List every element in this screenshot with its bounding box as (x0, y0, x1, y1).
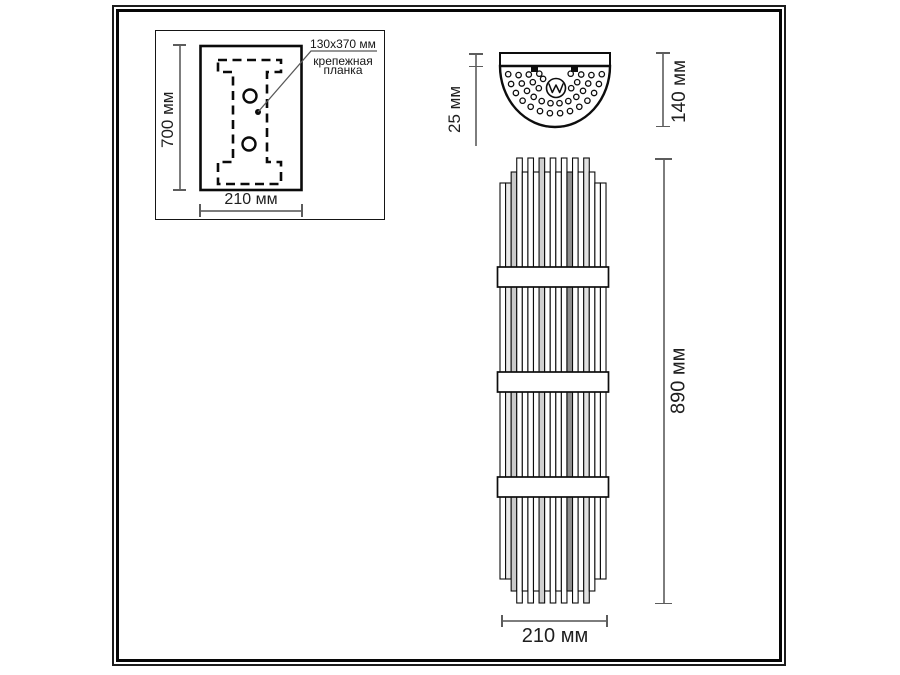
inset-width-dim-line (200, 210, 302, 212)
vent-hole (516, 72, 521, 77)
vent-hole (506, 72, 511, 77)
vent-hole (508, 81, 513, 86)
vent-hole (547, 111, 552, 116)
vent-hole (599, 72, 604, 77)
mounting-hole-bottom (243, 138, 256, 151)
inset-width-dim-label: 210 мм (198, 192, 304, 208)
vent-hole (513, 90, 518, 95)
vent-hole (567, 108, 572, 113)
lamp-height-dim-line (663, 159, 665, 604)
vent-hole (557, 111, 562, 116)
vent-hole (557, 101, 562, 106)
vent-hole (520, 98, 525, 103)
vent-hole (548, 101, 553, 106)
vent-hole (526, 72, 531, 77)
plate-depth-dim-cap-bottom (469, 66, 483, 68)
inset-height-dim-line (179, 45, 181, 190)
lamp-height-dim-cap-top (655, 158, 672, 160)
total-depth-dim-line (662, 53, 664, 127)
plate-depth-dim-label: 25 мм (444, 72, 466, 146)
vent-hole (596, 81, 601, 86)
callout-size-label: 130x370 мм (306, 39, 380, 49)
total-depth-dim-cap-top (656, 52, 670, 54)
vent-hole (531, 94, 536, 99)
vent-hole (589, 72, 594, 77)
vent-hole (540, 76, 545, 81)
vent-hole (524, 88, 529, 93)
vent-hole (566, 98, 571, 103)
vent-hole (577, 104, 582, 109)
plate-depth-dim-line (475, 54, 477, 146)
vent-hole (580, 88, 585, 93)
top-view-wall-plate (500, 53, 610, 66)
inset-height-dim-cap-bottom (173, 189, 186, 191)
mount-tab-left (531, 67, 538, 73)
mounting-hole-top (244, 90, 257, 103)
front-view-drawing (490, 150, 620, 610)
technical-drawing-page: 130x370 мм крепежная планка 700 мм 210 м… (0, 0, 900, 675)
lamp-width-dim-label: 210 мм (490, 625, 620, 647)
vent-hole (530, 80, 535, 85)
decorative-band-top (498, 267, 609, 287)
callout-name-line2: планка (306, 65, 380, 75)
vent-hole (591, 90, 596, 95)
vent-hole (569, 86, 574, 91)
decorative-band-bottom (498, 477, 609, 497)
vent-hole (575, 80, 580, 85)
vent-hole (519, 81, 524, 86)
vent-hole (537, 108, 542, 113)
mount-tab-right (571, 67, 578, 73)
inset-height-dim-label: 700 мм (157, 80, 179, 160)
lamp-width-dim-line (502, 620, 607, 622)
vent-hole (585, 98, 590, 103)
brand-logo-circle (547, 79, 566, 98)
vent-hole (528, 104, 533, 109)
vent-hole (586, 81, 591, 86)
lamp-height-dim-label: 890 мм (666, 329, 692, 433)
plate-depth-dim-cap-top (469, 53, 483, 55)
vent-hole (574, 94, 579, 99)
vent-hole (579, 72, 584, 77)
backplate-outline (201, 46, 302, 190)
vent-hole (539, 98, 544, 103)
total-depth-dim-label: 140 мм (667, 55, 693, 127)
lamp-height-dim-cap-bottom (655, 603, 672, 605)
inset-height-dim-cap-top (173, 44, 186, 46)
decorative-band-middle (498, 372, 609, 392)
vent-hole (536, 86, 541, 91)
